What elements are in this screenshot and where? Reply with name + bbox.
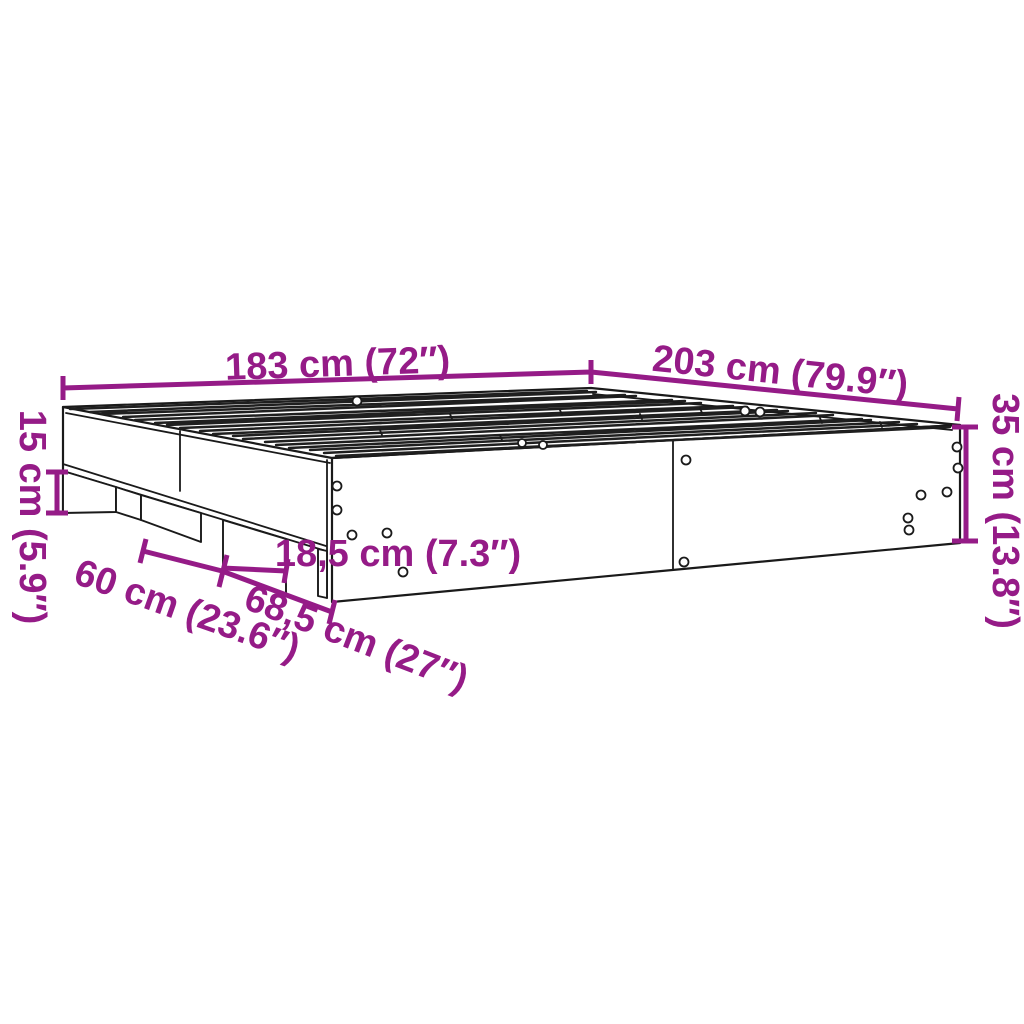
dimension-label-support-width: 18,5 cm (7.3″) xyxy=(275,533,521,575)
screw-hole xyxy=(917,491,926,500)
dimension-label-length: 203 cm (79.9″) xyxy=(650,338,910,407)
screw-hole xyxy=(333,482,342,491)
screw-hole xyxy=(953,443,962,452)
screw-hole xyxy=(682,456,691,465)
screw-hole xyxy=(518,439,526,447)
screw-hole xyxy=(954,464,963,473)
screw-hole xyxy=(353,397,362,406)
slats xyxy=(70,391,950,456)
recess-back-wall xyxy=(141,495,201,542)
screw-hole xyxy=(539,441,547,449)
screw-hole xyxy=(904,514,913,523)
screw-hole xyxy=(943,488,952,497)
screw-hole xyxy=(741,407,750,416)
dimension-label-height-total: 35 cm (13.8″) xyxy=(984,393,1024,629)
dimension-label-height-base: 15 cm (5.9″) xyxy=(11,410,53,625)
foot-side-step xyxy=(116,487,141,520)
bed-frame-diagram-canvas: 183 cm (72″) 203 cm (79.9″) 35 cm (13.8″… xyxy=(0,0,1024,1024)
screw-hole xyxy=(756,408,765,417)
dimension-diagram: 183 cm (72″) 203 cm (79.9″) 35 cm (13.8″… xyxy=(0,0,1024,1024)
screw-hole xyxy=(680,558,689,567)
dimension-label-width: 183 cm (72″) xyxy=(224,339,451,389)
screw-hole xyxy=(333,506,342,515)
screw-hole xyxy=(905,526,914,535)
